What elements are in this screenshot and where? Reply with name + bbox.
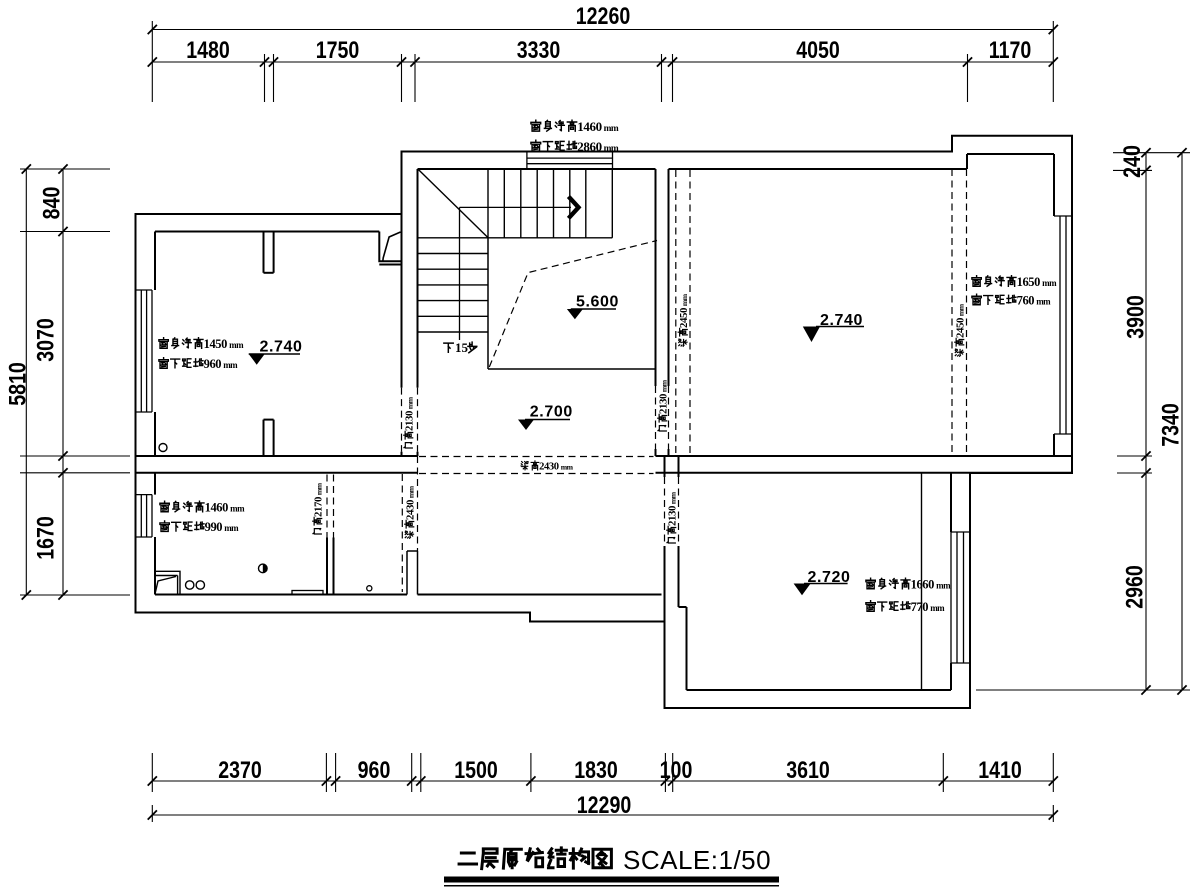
svg-text:960: 960 xyxy=(204,357,222,371)
svg-text:240: 240 xyxy=(1118,145,1146,178)
svg-text:4050: 4050 xyxy=(796,36,840,64)
svg-text:1450: 1450 xyxy=(204,337,228,351)
svg-text:3900: 3900 xyxy=(1121,295,1149,339)
svg-text:2130: 2130 xyxy=(403,411,415,431)
svg-text:1410: 1410 xyxy=(978,756,1022,784)
svg-text:mm: mm xyxy=(956,303,965,316)
svg-text:12290: 12290 xyxy=(577,791,631,819)
svg-text:2450: 2450 xyxy=(678,308,690,328)
svg-text:2370: 2370 xyxy=(218,756,262,784)
svg-text:mm: mm xyxy=(224,523,239,533)
svg-text:mm: mm xyxy=(561,463,574,472)
svg-text:5810: 5810 xyxy=(3,362,31,406)
svg-text:15: 15 xyxy=(455,340,469,355)
svg-text:1460: 1460 xyxy=(205,500,229,514)
svg-text:mm: mm xyxy=(668,491,677,504)
svg-text:1460: 1460 xyxy=(577,119,601,134)
svg-text:mm: mm xyxy=(230,503,245,513)
svg-text:12260: 12260 xyxy=(576,2,630,30)
svg-text:mm: mm xyxy=(229,340,244,350)
svg-text:mm: mm xyxy=(680,293,689,306)
svg-text:1170: 1170 xyxy=(989,36,1032,64)
svg-text:3070: 3070 xyxy=(31,318,59,362)
svg-text:2130: 2130 xyxy=(666,506,678,526)
svg-text:mm: mm xyxy=(659,379,668,392)
svg-text:1750: 1750 xyxy=(316,36,360,64)
svg-text:960: 960 xyxy=(358,756,391,784)
svg-text:mm: mm xyxy=(406,485,415,498)
svg-text:2.740: 2.740 xyxy=(260,339,303,356)
svg-text:1480: 1480 xyxy=(186,36,230,64)
svg-text:2.700: 2.700 xyxy=(530,404,573,421)
svg-text:990: 990 xyxy=(205,520,223,534)
svg-text:mm: mm xyxy=(930,603,945,613)
svg-text:mm: mm xyxy=(223,360,238,370)
svg-text:1650: 1650 xyxy=(1017,275,1041,289)
svg-text:7340: 7340 xyxy=(1156,403,1184,447)
svg-text:mm: mm xyxy=(604,124,619,134)
svg-text:1830: 1830 xyxy=(574,756,618,784)
svg-text:2860: 2860 xyxy=(577,139,601,154)
svg-text:mm: mm xyxy=(405,396,414,409)
svg-text:mm: mm xyxy=(1036,296,1051,306)
svg-text:2430: 2430 xyxy=(539,462,559,473)
svg-text:2130: 2130 xyxy=(657,394,669,414)
svg-text:3330: 3330 xyxy=(517,36,561,64)
svg-text:5.600: 5.600 xyxy=(576,294,619,311)
svg-text:SCALE:1/50: SCALE:1/50 xyxy=(623,845,771,875)
svg-text:100: 100 xyxy=(660,756,693,784)
svg-text:2170: 2170 xyxy=(312,497,324,517)
svg-text:2450: 2450 xyxy=(954,318,966,338)
svg-text:mm: mm xyxy=(604,144,619,154)
svg-text:770: 770 xyxy=(911,600,929,614)
svg-text:840: 840 xyxy=(37,187,65,220)
svg-text:3610: 3610 xyxy=(786,756,830,784)
svg-text:1660: 1660 xyxy=(911,577,935,591)
svg-text:mm: mm xyxy=(1042,278,1057,288)
svg-text:mm: mm xyxy=(314,482,323,495)
svg-text:2430: 2430 xyxy=(404,500,416,520)
svg-text:1500: 1500 xyxy=(454,756,498,784)
svg-text:mm: mm xyxy=(936,580,951,590)
svg-text:2960: 2960 xyxy=(1120,565,1148,609)
svg-text:760: 760 xyxy=(1017,293,1035,307)
svg-text:1670: 1670 xyxy=(31,516,59,560)
